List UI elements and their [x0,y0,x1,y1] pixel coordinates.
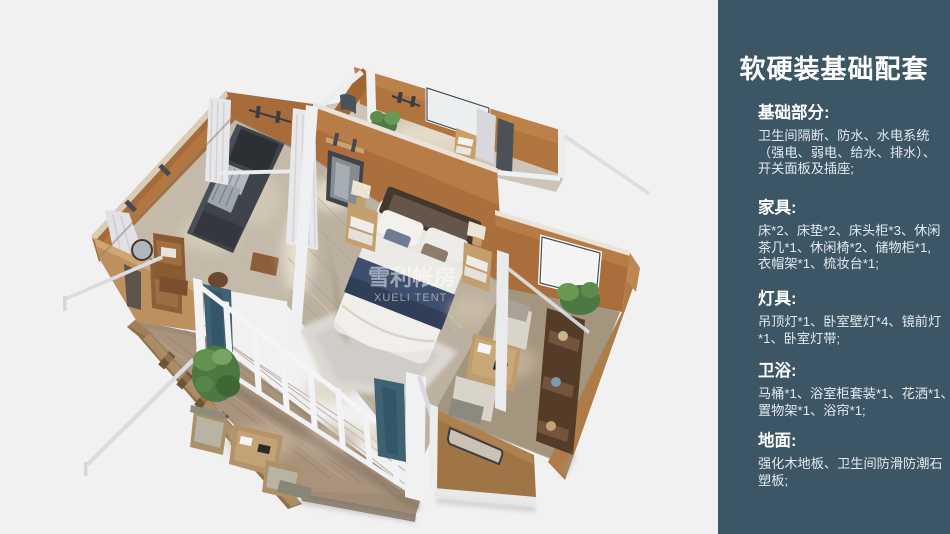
svg-text:雪利帐房: 雪利帐房 [368,265,456,290]
svg-text:XUELI TENT: XUELI TENT [374,292,447,304]
